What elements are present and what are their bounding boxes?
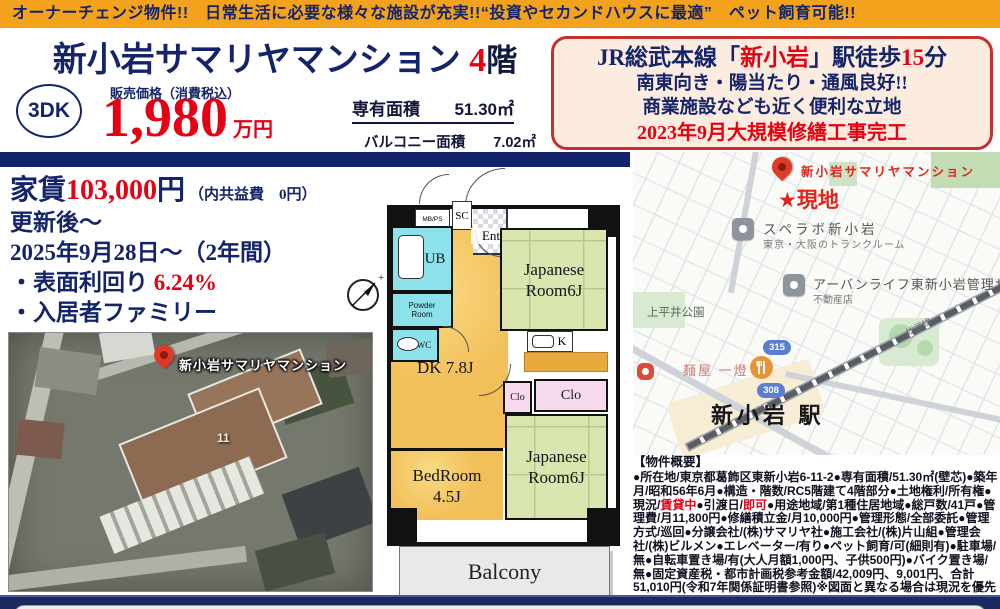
shop-poi-icon xyxy=(637,363,654,380)
contract-period-line: 2025年9月28日～（2年間） xyxy=(10,238,382,268)
highlight-box: JR総武本線「新小岩」駅徒歩15分 南東向き・陽当たり・通風良好!! 商業施設な… xyxy=(551,36,993,150)
aerial-building xyxy=(282,467,373,550)
room-japanese-bottom: JapaneseRoom6J xyxy=(505,414,608,520)
location-line: 商業施設なども近く便利な立地 xyxy=(554,96,990,120)
aerial-building xyxy=(15,419,65,460)
floor-suffix: 階 xyxy=(486,43,517,78)
restaurant-icon xyxy=(750,356,773,379)
closet-right: Clo xyxy=(534,379,608,412)
ramen-label: 麺屋 一燈 xyxy=(683,360,749,379)
flyer-page: オーナーチェンジ物件!! 日常生活に必要な様々な施設が充実!!“投資やセカンドハ… xyxy=(0,0,1000,609)
station-label: 新小岩 駅 xyxy=(711,398,825,430)
footer-rounded-box xyxy=(14,605,986,609)
svg-text:+: + xyxy=(378,272,384,284)
yield-value: 6.24% xyxy=(154,270,217,295)
status-rented: 賃貸中 xyxy=(660,498,696,512)
room-sc: SC xyxy=(452,201,472,230)
building-number: 11 xyxy=(217,431,230,445)
rent-line: 家賃103,000円（内共益費 0円） xyxy=(10,168,382,208)
office-poi-icon xyxy=(783,274,805,296)
rent-value: 103,000 xyxy=(66,175,157,206)
renovation-line: 2023年9月大規模修繕工事完工 xyxy=(554,120,990,146)
rent-note: （内共益費 0円） xyxy=(189,187,317,203)
bathtub-icon xyxy=(398,235,424,279)
exclusive-area-value: 51.30㎡ xyxy=(454,95,514,120)
exclusive-area-row: 専有面積 51.30㎡ xyxy=(352,95,514,124)
closet-left: Clo xyxy=(503,381,532,414)
kitchen-counter xyxy=(524,352,608,372)
aerial-photo: 新小岩サマリヤマンション 11 xyxy=(8,332,373,592)
route-badge-315: 315 xyxy=(763,340,791,355)
price-value: 1,980 xyxy=(102,87,228,149)
rent-info: 家賃103,000円（内共益費 0円） 更新後～ 2025年9月28日～（2年間… xyxy=(10,168,382,330)
sink-icon xyxy=(532,335,554,348)
property-title: 新小岩サマリヤマンション 4階 xyxy=(30,32,540,81)
room-japanese-top: JapaneseRoom6J xyxy=(500,228,608,331)
location-map: 総武線 新小岩サマリヤマンション ★現地 スペラボ新小岩 東京・大阪のトランクル… xyxy=(633,152,1000,455)
overview-body: ●所在地/東京都葛飾区東新小岩6-11-2●専有面積/51.30㎡(壁芯)●築年… xyxy=(633,471,999,609)
room-ub: UB xyxy=(391,226,453,292)
map-pin-label: 新小岩サマリヤマンション xyxy=(801,161,975,180)
aerial-building xyxy=(255,532,335,591)
handover-immediate: 即可 xyxy=(743,498,767,512)
overview-heading: 【物件概要】 xyxy=(633,451,999,470)
price: 1,980万円 xyxy=(102,86,273,150)
floor-number: 4 xyxy=(469,42,486,79)
site-label: ★現地 xyxy=(778,184,839,214)
aerial-pin-label: 新小岩サマリヤマンション xyxy=(179,355,347,374)
station-access-line: JR総武本線「新小岩」駅徒歩15分 xyxy=(554,43,990,72)
kitchen-box: K xyxy=(527,331,573,352)
pillar xyxy=(587,508,620,546)
balcony: Balcony xyxy=(399,546,610,598)
aerial-road xyxy=(8,546,247,592)
floor-plan: DK 7.8J MB/PS SC Ent UB PowderRoom WC Ja… xyxy=(385,168,628,608)
poi1-sub: 東京・大阪のトランクルーム xyxy=(763,236,905,251)
door-arc xyxy=(419,174,449,204)
map-park xyxy=(917,340,933,356)
route-badge-308: 308 xyxy=(757,383,785,398)
storage-poi-icon xyxy=(732,218,754,240)
renewal-line: 更新後～ xyxy=(10,208,382,238)
room-wc: WC xyxy=(391,328,439,362)
area-info: 専有面積 51.30㎡ バルコニー面積 7.02㎡ xyxy=(352,95,536,156)
poi1-label: スペラボ新小岩 xyxy=(763,218,878,238)
balcony-area-value: 7.02㎡ xyxy=(493,131,536,152)
compass-icon: + xyxy=(342,270,388,316)
tenant-line: ・入居者ファミリー xyxy=(10,298,382,328)
map-pin-icon xyxy=(768,153,796,181)
price-unit: 万円 xyxy=(233,119,273,141)
toilet-icon xyxy=(397,337,419,351)
exclusive-area-label: 専有面積 xyxy=(352,95,420,120)
banner-text: オーナーチェンジ物件!! 日常生活に必要な様々な施設が充実!!“投資やセカンドハ… xyxy=(12,5,856,22)
footer-bar xyxy=(0,595,1000,609)
facing-line: 南東向き・陽当たり・通風良好!! xyxy=(554,72,990,96)
aerial-building xyxy=(35,347,102,395)
rent-label: 家賃 xyxy=(10,175,66,206)
park-label: 上平井公園 xyxy=(647,304,705,320)
yield-line: ・表面利回り 6.24% xyxy=(10,268,382,298)
pillar xyxy=(387,508,417,546)
room-powder: PowderRoom xyxy=(391,292,453,328)
poi2-sub: 不動産店 xyxy=(813,291,853,306)
balcony-area-label: バルコニー面積 xyxy=(364,131,465,152)
top-banner: オーナーチェンジ物件!! 日常生活に必要な様々な施設が充実!!“投資やセカンドハ… xyxy=(0,0,1000,28)
divider-bar xyxy=(0,152,630,167)
property-overview: 【物件概要】 ●所在地/東京都葛飾区東新小岩6-11-2●専有面積/51.30㎡… xyxy=(633,451,999,609)
property-name: 新小岩サマリヤマンション xyxy=(53,42,470,79)
layout-badge: 3DK xyxy=(16,84,82,138)
